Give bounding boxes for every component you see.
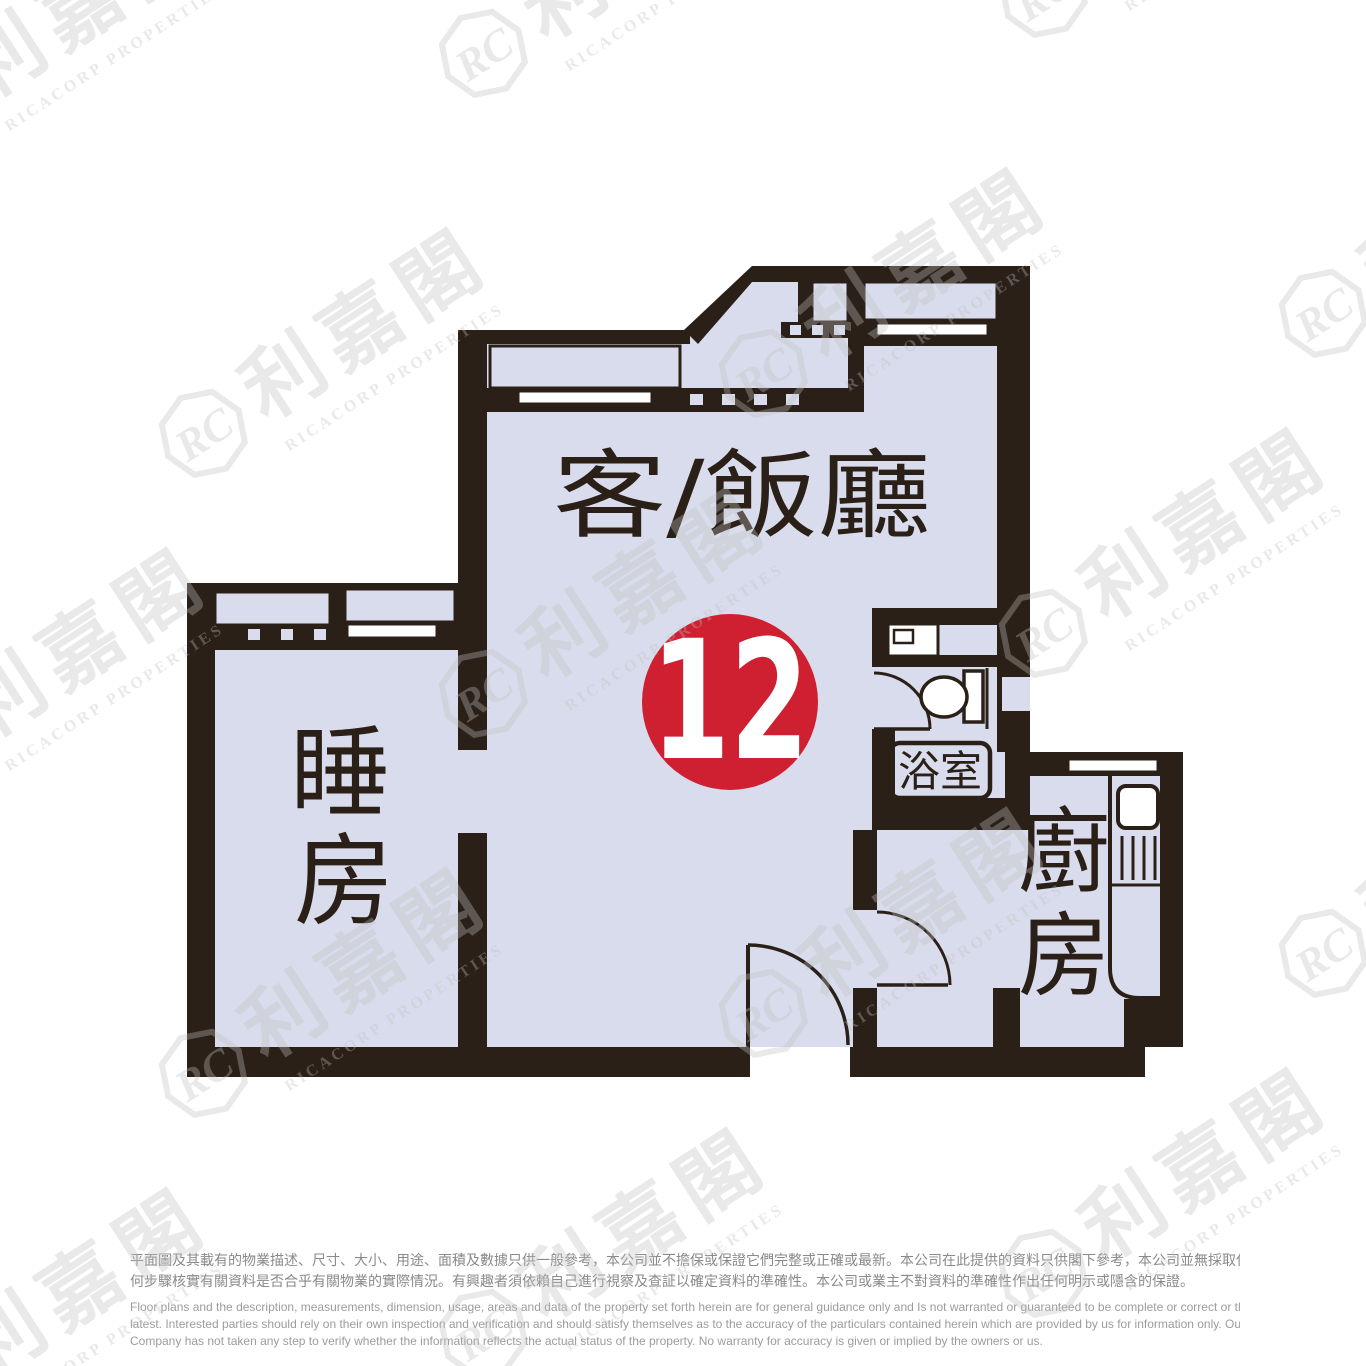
bathroom-sink	[888, 624, 938, 656]
room-label-kitchen: 廚	[1018, 799, 1110, 906]
window-mullions	[248, 629, 326, 640]
window-strip	[518, 391, 652, 404]
unit-number-badge: 12	[642, 605, 818, 797]
unit-number: 12	[651, 605, 809, 797]
room-label-kitchen: 房	[1018, 903, 1110, 1010]
disclaimer-line: latest. Interested parties should rely o…	[130, 1316, 1240, 1333]
room-label-bedroom: 房	[294, 823, 394, 940]
bathroom-wall-notch	[1002, 677, 1030, 711]
disclaimer-english: Floor plans and the description, measure…	[130, 1299, 1240, 1350]
window-strip	[876, 323, 988, 336]
room-label-bathroom: 浴室	[898, 747, 982, 796]
disclaimer-line: Company has not taken any step to verify…	[130, 1333, 1240, 1350]
window-panel	[345, 589, 455, 622]
room-label-bedroom: 睡	[290, 715, 390, 832]
window-mullions	[790, 325, 845, 335]
disclaimer-line: Floor plans and the description, measure…	[130, 1299, 1240, 1316]
floor-plan-page: 客/飯廳 睡 房 浴室 廚 房 12 平面圖及其載有的物業描述、尺寸、大小、用途…	[0, 0, 1366, 1366]
disclaimer-line: 平面圖及其載有的物業描述、尺寸、大小、用途、面積及數據只供一般參考，本公司並不擔…	[130, 1250, 1240, 1271]
bathroom-label: 浴室	[890, 743, 990, 798]
kitchen-sink	[1118, 786, 1158, 828]
floor-plan-image: 客/飯廳 睡 房 浴室 廚 房 12	[0, 0, 1366, 1366]
bedroom-door-opening	[458, 750, 487, 833]
window-panel	[215, 592, 330, 625]
window-strip	[1068, 759, 1158, 772]
window-strip	[347, 624, 437, 638]
entrance-opening	[750, 1047, 850, 1077]
room-label-living-dining: 客/飯廳	[553, 440, 931, 552]
disclaimer-chinese: 平面圖及其載有的物業描述、尺寸、大小、用途、面積及數據只供一般參考，本公司並不擔…	[130, 1250, 1240, 1292]
disclaimer-line: 何步驟核實有關資料是否合乎有關物業的實際情況。有興趣者須依賴自己進行視察及查証以…	[130, 1271, 1240, 1292]
